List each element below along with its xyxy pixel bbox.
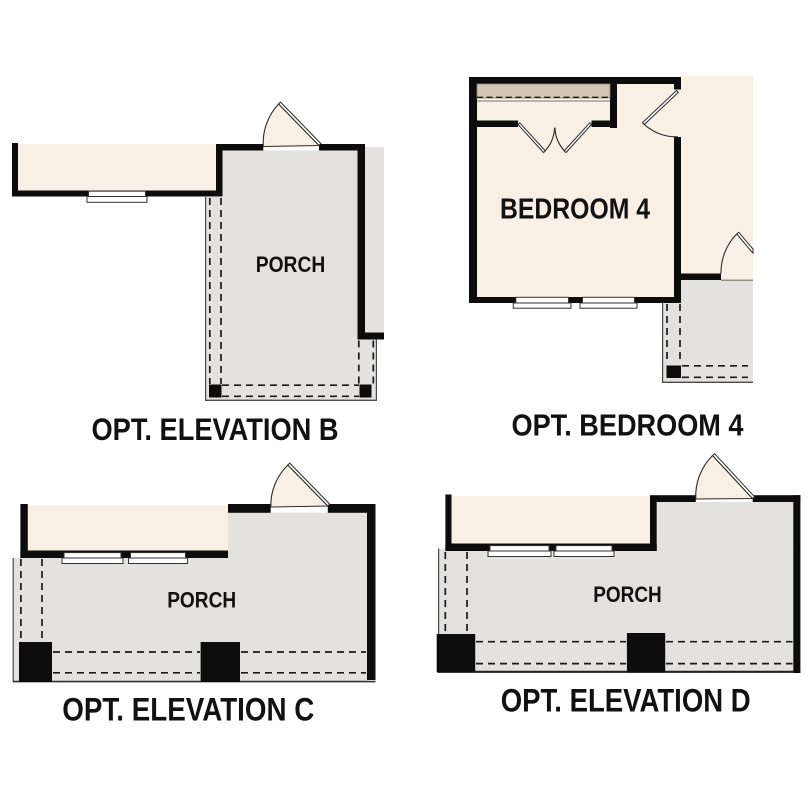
svg-text:OPT. ELEVATION C: OPT. ELEVATION C [62, 691, 314, 727]
svg-text:PORCH: PORCH [256, 252, 326, 277]
svg-text:OPT. ELEVATION D: OPT. ELEVATION D [501, 682, 751, 718]
svg-text:OPT. ELEVATION B: OPT. ELEVATION B [92, 411, 339, 447]
svg-text:OPT. BEDROOM 4: OPT. BEDROOM 4 [512, 409, 744, 443]
svg-text:PORCH: PORCH [593, 582, 662, 607]
svg-text:BEDROOM 4: BEDROOM 4 [500, 193, 650, 225]
svg-text:PORCH: PORCH [167, 588, 236, 613]
